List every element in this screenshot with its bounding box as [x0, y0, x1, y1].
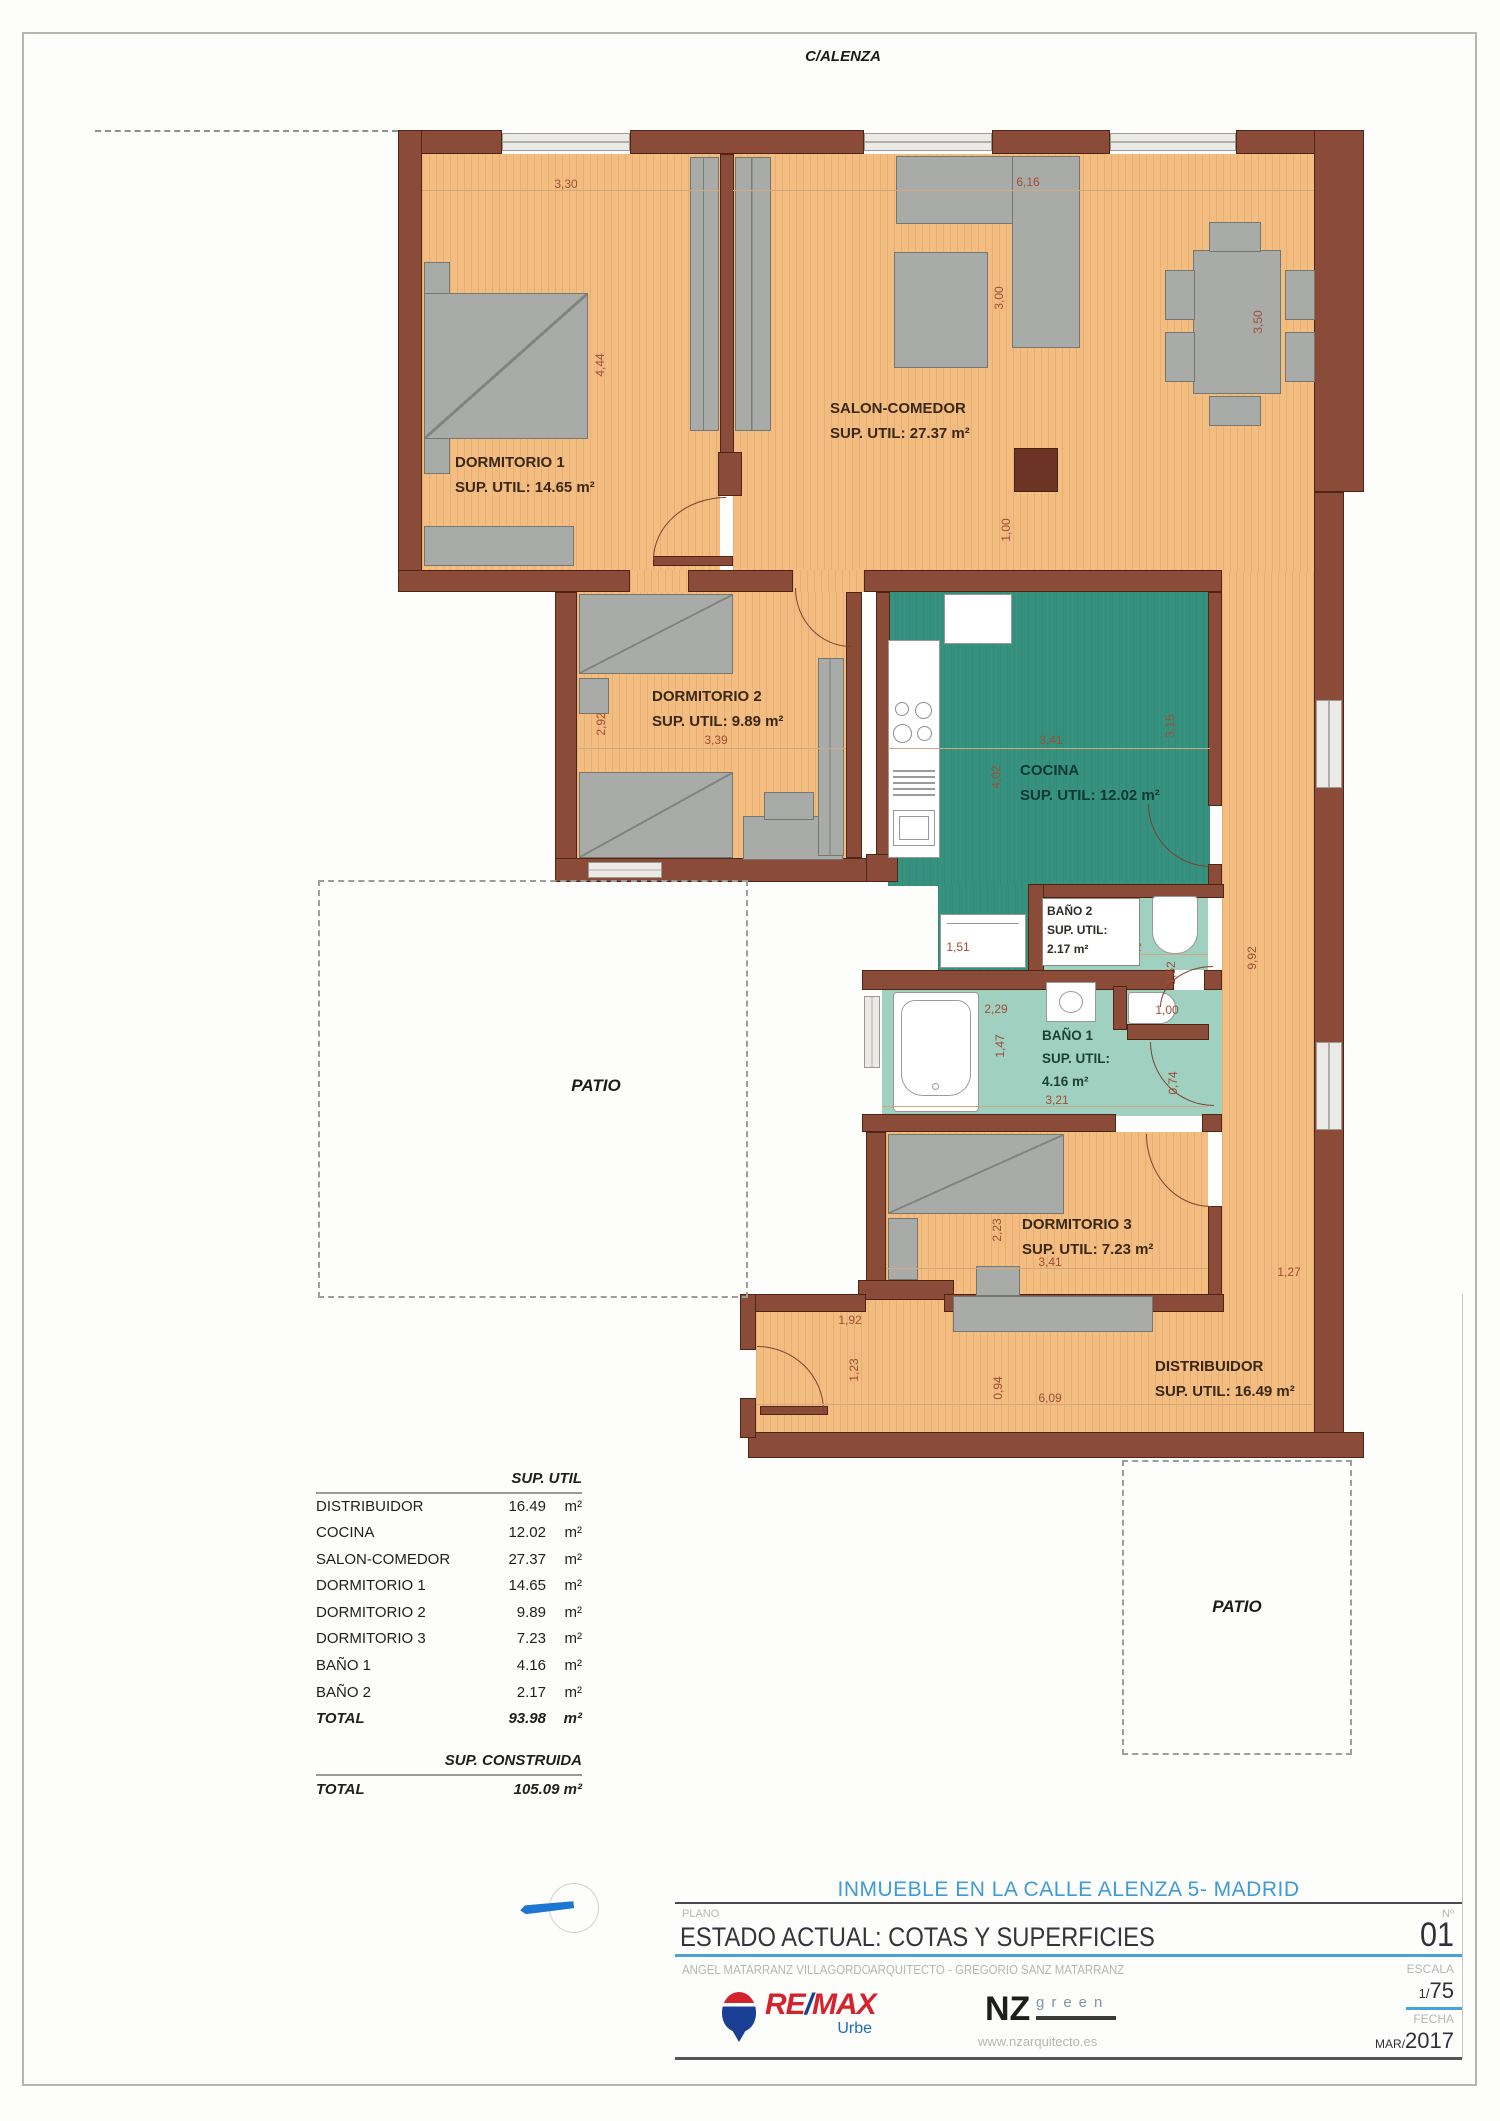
escala-big: 75 [1430, 1978, 1454, 2003]
dorm2-chair [764, 792, 814, 820]
wall-top-3 [992, 130, 1110, 154]
rule-bottom [675, 2057, 1462, 2060]
surface-table: SUP. UTIL DISTRIBUIDOR16.49m² COCINA12.0… [316, 1470, 582, 1737]
row-value: 7.23 [494, 1630, 546, 1647]
row-unit: m² [546, 1630, 582, 1647]
rule-blue [675, 1954, 1462, 1957]
remax-re: RE [765, 1988, 805, 2021]
wall-bano1-bottom [862, 1114, 1116, 1132]
room-name: DORMITORIO 2 [652, 684, 783, 709]
room-area: SUP. UTIL: 27.37 m² [830, 421, 970, 446]
plano-value: ESTADO ACTUAL: COTAS Y SUPERFICIES [680, 1922, 1155, 1953]
wall-right-lower [1314, 492, 1344, 1458]
room-area: SUP. UTIL: 12.02 m² [1020, 783, 1160, 808]
room-label-bano2: BAÑO 2 SUP. UTIL: 2.17 m² [1042, 898, 1140, 966]
remax-balloon-icon [722, 1992, 756, 2032]
room-area: SUP. UTIL: 14.65 m² [455, 475, 595, 500]
row-value: 4.16 [494, 1657, 546, 1674]
rule-top [675, 1902, 1462, 1904]
row-label: TOTAL [316, 1710, 494, 1727]
room-name: SALON-COMEDOR [830, 396, 970, 421]
fecha-label: FECHA [1380, 2012, 1454, 2026]
wall-bano1-bottom-stub [1202, 1114, 1222, 1132]
wall-bottom [748, 1432, 1364, 1458]
row-value: 12.02 [494, 1524, 546, 1541]
row-label: DORMITORIO 2 [316, 1604, 494, 1621]
patio-left-label: PATIO [571, 1076, 620, 1096]
escala-small: 1/ [1419, 1986, 1430, 2001]
room-name: BAÑO 2 [1047, 902, 1135, 921]
wall-entrance-lower [740, 1398, 756, 1438]
row-label: DORMITORIO 3 [316, 1630, 494, 1647]
dimension-label: 2,92 [594, 712, 608, 735]
remax-balloon-basket [732, 2030, 746, 2042]
nz-green-label: green [1036, 1994, 1109, 2011]
table-row: DORMITORIO 29.89m² [316, 1604, 582, 1631]
room-name: DISTRIBUIDOR [1155, 1354, 1295, 1379]
dimension-label: 3,41 [1039, 733, 1062, 747]
table-row: COCINA12.02m² [316, 1524, 582, 1551]
room-name: BAÑO 1 [1042, 1024, 1110, 1047]
row-value: 27.37 [494, 1551, 546, 1568]
row-unit: m² [546, 1577, 582, 1594]
remax-max: MAX [812, 1988, 876, 2021]
architect-name: ARQUITECTO - GREGORIO SANZ MATARRANZ [870, 1962, 1124, 1977]
row-label: BAÑO 2 [316, 1684, 494, 1701]
table-row-total: TOTAL93.98m² [316, 1710, 582, 1737]
dim-line [577, 748, 846, 749]
dimension-label: 3,15 [1163, 714, 1177, 737]
cocina-stove-icon [893, 700, 935, 748]
dimension-label: 2,29 [984, 1002, 1007, 1016]
table-rule [316, 1492, 582, 1494]
row-label: TOTAL [316, 1781, 449, 1798]
dimension-label: 4,02 [989, 765, 1003, 788]
remax-sub-label: Urbe [790, 2020, 872, 2038]
row-value: 2.17 [494, 1684, 546, 1701]
dimension-label: 9,92 [1245, 946, 1259, 969]
room-label-dormitorio3: DORMITORIO 3 SUP. UTIL: 7.23 m² [1022, 1212, 1153, 1262]
dimension-label: 1,47 [993, 1034, 1007, 1057]
dim-line [888, 748, 1210, 749]
row-value: 16.49 [494, 1498, 546, 1515]
window-right-1 [1316, 700, 1342, 788]
dorm3-chair [976, 1266, 1020, 1296]
dimension-label: 0,94 [991, 1376, 1005, 1399]
row-label: COCINA [316, 1524, 494, 1541]
wall-mid-2 [688, 570, 793, 592]
room-area: SUP. UTIL: [1047, 921, 1135, 940]
wall-dorm1-salon-divider [720, 154, 734, 460]
room-area: SUP. UTIL: 9.89 m² [652, 709, 783, 734]
wall-nook-v [1113, 986, 1127, 1030]
street-label: C/ALENZA [805, 48, 881, 65]
nz-logo-text: NZ [985, 1990, 1030, 2029]
room-label-dormitorio2: DORMITORIO 2 SUP. UTIL: 9.89 m² [652, 684, 783, 734]
wall-mid-3 [864, 570, 1222, 592]
row-label: SALON-COMEDOR [316, 1551, 494, 1568]
nz-green-bar [1036, 2016, 1116, 2020]
room-label-cocina: COCINA SUP. UTIL: 12.02 m² [1020, 758, 1160, 808]
remax-slash: / [805, 1988, 812, 2021]
wall-nook-h [1127, 1024, 1209, 1040]
wall-corridor-top-left [740, 1294, 866, 1312]
room-label-bano1: BAÑO 1 SUP. UTIL: 4.16 m² [1042, 1024, 1110, 1093]
dining-chair-left-1 [1165, 270, 1195, 320]
dining-chair-top [1209, 222, 1261, 252]
dorm2-wardrobe [818, 658, 844, 856]
fecha-big: 2017 [1405, 2028, 1454, 2053]
wall-dorm3-left [866, 1132, 886, 1300]
window-salon-2 [1110, 133, 1236, 151]
dorm3-bed [888, 1134, 1064, 1214]
room-name: DORMITORIO 3 [1022, 1212, 1153, 1237]
table-rule [316, 1774, 582, 1776]
row-unit: m² [546, 1551, 582, 1568]
surface-table-header: SUP. UTIL [316, 1470, 582, 1492]
room-name: DORMITORIO 1 [455, 450, 595, 475]
window-salon-1 [864, 133, 992, 151]
dimension-label: 1,51 [946, 940, 969, 954]
room-area: SUP. UTIL: [1042, 1047, 1110, 1070]
row-unit: m² [546, 1498, 582, 1515]
dining-chair-right-1 [1285, 270, 1315, 320]
room-name: COCINA [1020, 758, 1160, 783]
table-row: SALON-COMEDOR27.37m² [316, 1551, 582, 1578]
wall-dorm2-left [555, 592, 577, 880]
dimension-label: 6,09 [1038, 1391, 1061, 1405]
row-unit: m² [546, 1710, 582, 1727]
row-value: 14.65 [494, 1577, 546, 1594]
row-unit: m² [546, 1657, 582, 1674]
dining-chair-left-2 [1165, 332, 1195, 382]
wall-left [398, 130, 422, 592]
room-area: SUP. UTIL: 16.49 m² [1155, 1379, 1295, 1404]
dorm2-nightstand [579, 678, 609, 714]
row-label: BAÑO 1 [316, 1657, 494, 1674]
patio-left-outline [318, 880, 748, 1298]
bano2-toilet [1152, 896, 1198, 954]
cocina-dishwasher [893, 770, 935, 800]
room-area: SUP. UTIL: 7.23 m² [1022, 1237, 1153, 1262]
table-row: BAÑO 22.17m² [316, 1684, 582, 1711]
remax-logo-text: RE/MAX [765, 1988, 876, 2022]
window-bano1 [864, 996, 880, 1068]
dining-table [1193, 250, 1281, 394]
table-row: DORMITORIO 114.65m² [316, 1577, 582, 1604]
title-block: INMUEBLE EN LA CALLE ALENZA 5- MADRID PL… [675, 1870, 1462, 2060]
room-label-dormitorio1: DORMITORIO 1 SUP. UTIL: 14.65 m² [455, 450, 595, 500]
table-row-built-total: TOTAL105.09 m² [316, 1781, 582, 1808]
rule-escala [1406, 2007, 1462, 2010]
wall-cocina-right-stub [1208, 864, 1222, 886]
table-row: BAÑO 14.16m² [316, 1657, 582, 1684]
salon-fireplace [1014, 448, 1058, 492]
patio-right-label: PATIO [1212, 1597, 1261, 1617]
bano1-sink [1046, 982, 1096, 1022]
row-label: DORMITORIO 1 [316, 1577, 494, 1594]
num-value: 01 [1387, 1916, 1454, 1955]
row-unit: m² [546, 1604, 582, 1621]
cocina-fridge [944, 594, 1012, 644]
fecha-value: MAR/2017 [1300, 2028, 1454, 2054]
dimension-label: 1,23 [847, 1358, 861, 1381]
window-right-2 [1316, 1042, 1342, 1130]
row-unit: m² [546, 1684, 582, 1701]
built-surface-table: SUP. CONSTRUIDA TOTAL105.09 m² [316, 1752, 582, 1807]
dimension-label: 3,00 [992, 286, 1006, 309]
wall-top-2 [630, 130, 864, 154]
row-unit: m² [546, 1524, 582, 1541]
wall-divider-foot [718, 452, 742, 496]
window-dorm1 [502, 133, 630, 151]
row-value: 105.09 m² [449, 1781, 582, 1798]
title-block-side-line [1462, 1294, 1463, 2058]
table-row: DISTRIBUIDOR16.49m² [316, 1498, 582, 1525]
author-name: ANGEL MATARRANZ VILLAGORDO [682, 1962, 871, 1977]
closet-dorm1 [690, 157, 719, 431]
project-title: INMUEBLE EN LA CALLE ALENZA 5- MADRID [675, 1878, 1462, 1902]
floor-corridor-vertical [1222, 572, 1314, 1432]
dimension-label: 1,92 [838, 1313, 861, 1327]
floor-plan-sheet: C/ALENZA [0, 0, 1500, 2121]
wall-cocina-left-stub [866, 854, 898, 882]
bano1-bathtub [893, 992, 979, 1112]
dorm3-wardrobe [888, 1218, 918, 1280]
window-dorm2 [588, 862, 662, 878]
dim-line [756, 1404, 1312, 1405]
plano-label: PLANO [682, 1908, 719, 1920]
dimension-label: 1,52 [1164, 961, 1178, 984]
row-value: 9.89 [494, 1604, 546, 1621]
dining-chair-bottom [1209, 396, 1261, 426]
room-label-distribuidor: DISTRIBUIDOR SUP. UTIL: 16.49 m² [1155, 1354, 1295, 1404]
wall-right-upper [1314, 130, 1364, 492]
table-row: DORMITORIO 37.23m² [316, 1630, 582, 1657]
dimension-label: 3,30 [554, 177, 577, 191]
room-label-salon: SALON-COMEDOR SUP. UTIL: 27.37 m² [830, 396, 970, 446]
dimension-label: 1,27 [1277, 1265, 1300, 1279]
salon-coffee-table [894, 252, 988, 368]
dimension-label: 4,44 [593, 353, 607, 376]
escala-label: ESCALA [1380, 1962, 1454, 1976]
dorm2-bed-2 [579, 772, 733, 858]
corridor-sideboard [953, 1296, 1153, 1332]
dimension-label: 3,21 [1045, 1093, 1068, 1107]
dimension-label: 6,16 [1016, 175, 1039, 189]
dimension-label: 0,74 [1166, 1071, 1180, 1094]
wall-mid-1 [398, 570, 630, 592]
nz-website: www.nzarquitecto.es [978, 2034, 1097, 2049]
dining-chair-right-2 [1285, 332, 1315, 382]
dorm2-bed-1 [579, 594, 733, 674]
escala-value: 1/75 [1330, 1978, 1454, 2004]
dorm1-dresser [424, 526, 574, 566]
row-label: DISTRIBUIDOR [316, 1498, 494, 1515]
cocina-sink [893, 810, 935, 846]
dim-line [733, 190, 1314, 191]
wall-bano1-top [862, 970, 1174, 990]
row-value: 93.98 [494, 1710, 546, 1727]
fecha-small: MAR/ [1375, 2037, 1405, 2051]
dimension-label: 3,39 [704, 733, 727, 747]
dimension-label: 1,00 [1155, 1003, 1178, 1017]
wall-entrance-upper [740, 1294, 756, 1350]
adjacent-building-dashed-line [95, 130, 398, 132]
floor-door-gap1 [630, 570, 688, 592]
room-area: 2.17 m² [1047, 940, 1135, 959]
wall-cocina-right [1208, 592, 1222, 806]
wall-dorm3-right [1208, 1206, 1222, 1298]
closet-salon [735, 157, 771, 431]
wall-dorm3-bottom-left [858, 1280, 954, 1300]
room-area: 4.16 m² [1042, 1070, 1110, 1093]
dimension-label: 2,23 [990, 1218, 1004, 1241]
built-table-header: SUP. CONSTRUIDA [316, 1752, 582, 1774]
dimension-label: 1,00 [999, 518, 1013, 541]
dorm1-bed [424, 293, 588, 439]
dimension-label: 3,50 [1251, 310, 1265, 333]
